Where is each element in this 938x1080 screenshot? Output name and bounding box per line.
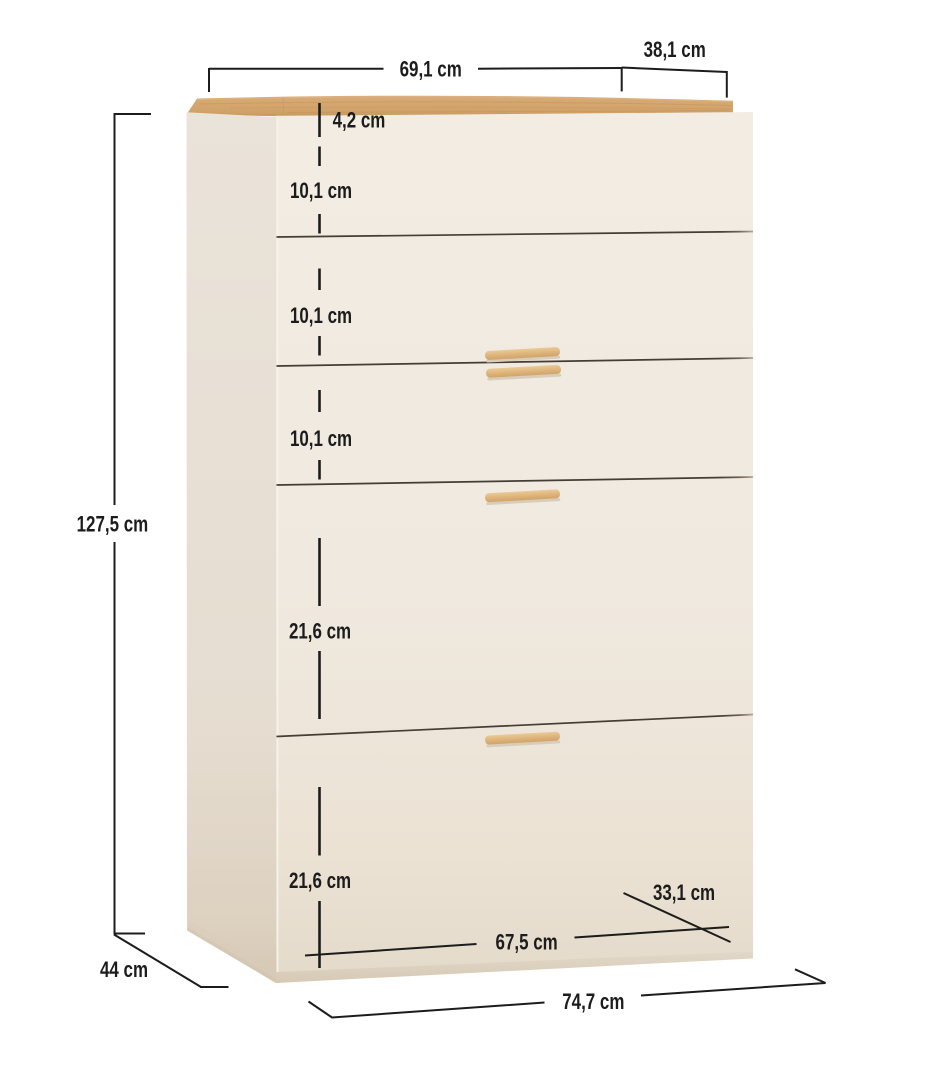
svg-text:10,1 cm: 10,1 cm <box>290 304 352 329</box>
svg-text:33,1 cm: 33,1 cm <box>653 881 715 906</box>
svg-text:38,1 cm: 38,1 cm <box>644 38 706 63</box>
svg-text:21,6 cm: 21,6 cm <box>289 619 351 644</box>
svg-text:10,1 cm: 10,1 cm <box>290 427 352 452</box>
svg-text:10,1 cm: 10,1 cm <box>290 179 352 204</box>
svg-text:21,6 cm: 21,6 cm <box>289 869 351 894</box>
svg-text:4,2 cm: 4,2 cm <box>333 108 386 133</box>
svg-text:44 cm: 44 cm <box>100 958 148 983</box>
svg-text:69,1 cm: 69,1 cm <box>400 57 462 82</box>
svg-text:127,5 cm: 127,5 cm <box>77 512 149 537</box>
svg-text:67,5 cm: 67,5 cm <box>496 930 558 955</box>
svg-text:74,7 cm: 74,7 cm <box>562 990 624 1015</box>
